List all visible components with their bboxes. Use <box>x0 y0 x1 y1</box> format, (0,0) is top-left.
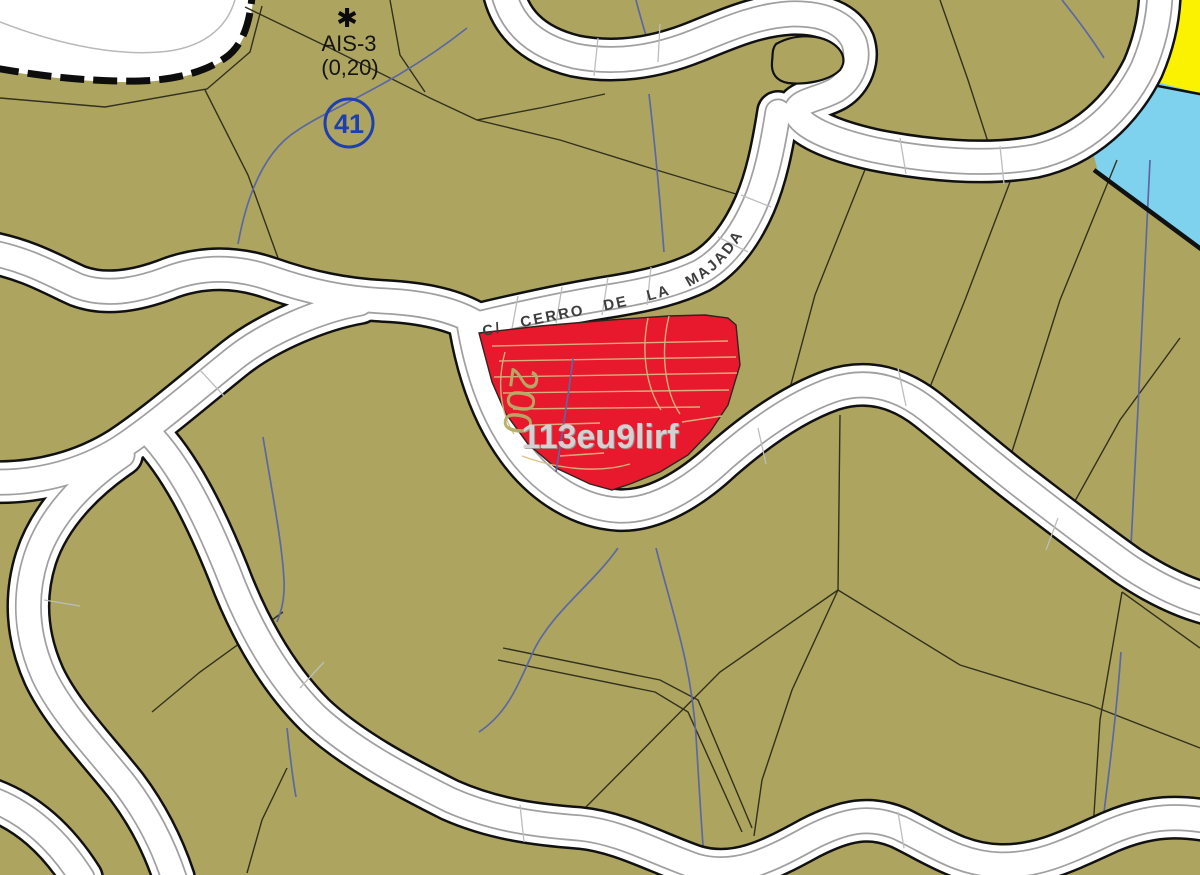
map-viewport[interactable]: 200 113eu9lirf 113eu9lirf C/ CERRO DE LA… <box>0 0 1200 875</box>
zone-coefficient-label: (0,20) <box>321 55 378 80</box>
zone-code-label: AIS-3 <box>321 31 376 56</box>
cadastral-map-canvas[interactable]: 200 113eu9lirf 113eu9lirf C/ CERRO DE LA… <box>0 0 1200 875</box>
parcel-number-label: 41 <box>334 109 364 139</box>
road-loop-island <box>772 36 844 83</box>
parcel-reference-label: 113eu9lirf <box>522 418 680 456</box>
zone-marker-asterisk-icon: ✱ <box>336 3 358 33</box>
